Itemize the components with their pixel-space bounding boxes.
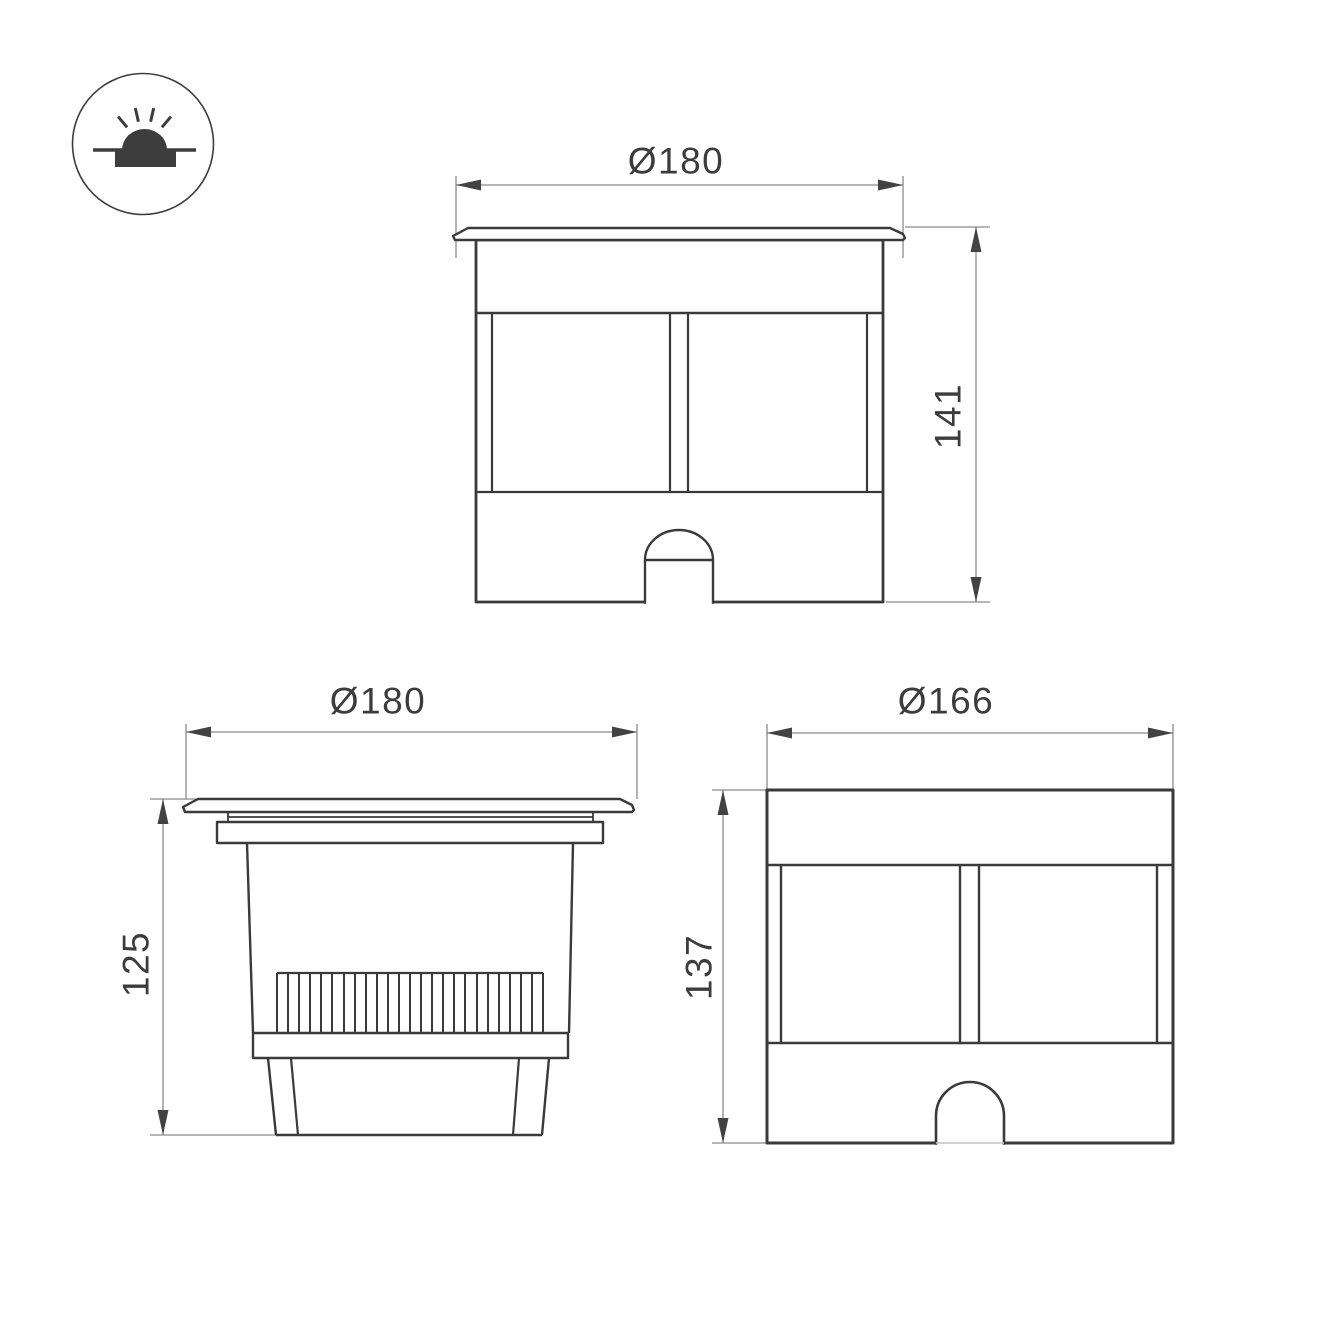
side-height-label: 137 bbox=[681, 934, 718, 1000]
technical-drawing-page: Ø180 141 Ø180 125 Ø166 137 bbox=[0, 0, 1331, 1331]
section-view-extension-lines bbox=[150, 724, 637, 1135]
front-cable-notch bbox=[645, 530, 713, 604]
section-heatsink-fins bbox=[277, 973, 543, 1033]
section-clamp-ring bbox=[217, 822, 603, 843]
icon-light-rays bbox=[118, 108, 171, 127]
recessed-ground-light-icon bbox=[73, 74, 214, 215]
front-view-drawing bbox=[453, 176, 990, 604]
side-view-drawing bbox=[712, 724, 1173, 1145]
luminaire-dimension-drawing bbox=[0, 0, 1331, 1331]
section-flange-neck bbox=[228, 812, 593, 822]
section-flange bbox=[183, 799, 634, 812]
icon-lamp-dome bbox=[122, 129, 167, 150]
icon-lamp-body bbox=[115, 150, 176, 167]
front-height-label: 141 bbox=[930, 383, 967, 449]
section-view-dim-arrows bbox=[158, 727, 638, 1136]
section-diameter-label: Ø180 bbox=[330, 683, 427, 720]
side-cable-arch bbox=[936, 1082, 1004, 1145]
section-lower-housing-inner-lines bbox=[291, 1058, 519, 1135]
front-flange bbox=[453, 228, 905, 240]
section-lower-housing bbox=[268, 1058, 549, 1135]
section-view-drawing bbox=[150, 724, 637, 1135]
section-base-plate bbox=[253, 1033, 568, 1058]
front-diameter-label: Ø180 bbox=[628, 143, 725, 180]
side-diameter-label: Ø166 bbox=[898, 683, 995, 720]
section-height-label: 125 bbox=[118, 931, 155, 997]
